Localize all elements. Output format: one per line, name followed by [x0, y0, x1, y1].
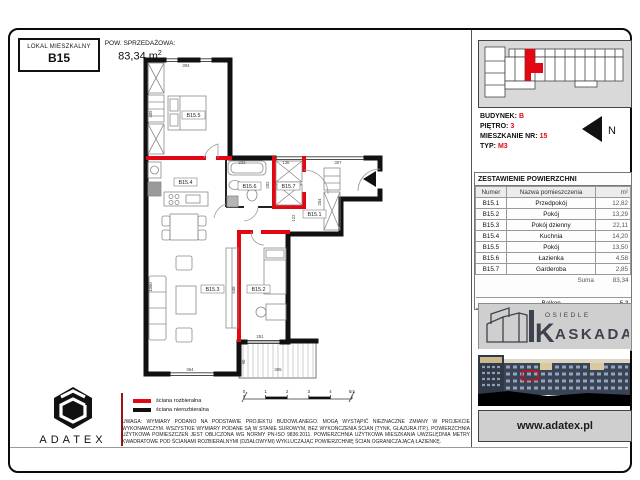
estate-logo-bar	[529, 310, 534, 342]
table-row: B15.3Pokój dzienny22,11	[476, 220, 631, 231]
developer-name: ADATEX	[39, 434, 106, 446]
room-label-b154: B15.4	[174, 178, 197, 186]
svg-text:B15.1: B15.1	[307, 212, 321, 218]
table-title: ZESTAWIENIE POWIERZCHNI	[475, 173, 631, 186]
svg-text:365: 365	[274, 367, 282, 372]
legend-item-removable: ściana rozbieralna	[133, 396, 233, 405]
svg-text:202: 202	[265, 181, 270, 189]
estate-name-initial: K	[535, 318, 555, 348]
structural-wall-label: ściana nierozbieralna	[156, 407, 209, 413]
scale-tick-labels: 0 1 2 3 4 5m	[243, 389, 356, 394]
estate-name-rest: ASKADA	[555, 326, 629, 343]
table-row: B15.1Przedpokój12,82	[476, 198, 631, 209]
unit-id-box: LOKAL MIESZKALNY B15	[18, 38, 100, 72]
info-building-value: B	[519, 113, 524, 120]
compass-north-icon: N	[580, 114, 626, 144]
info-floor-label: PIĘTRO:	[480, 123, 508, 130]
row-name: Pokój	[506, 242, 596, 253]
entrance-door-icon	[363, 171, 376, 187]
estate-logo-box: OSIEDLE K ASKADA	[478, 303, 632, 351]
floor-plan: B15.5 B15.4 B15.6 B15.7 B15.1 B15.3 B15.…	[118, 52, 478, 397]
kitchen-furniture	[148, 162, 208, 240]
row-name: Łazienka	[506, 253, 596, 264]
row-num: B15.5	[476, 242, 507, 253]
col-number: Numer	[476, 187, 507, 198]
room-label-b151: B15.1	[303, 210, 326, 218]
total-value: 83,34	[596, 275, 631, 286]
room-label-b152: B15.2	[247, 285, 270, 293]
removable-wall-label: ściana rozbieralna	[156, 398, 201, 404]
disclaimer-text: UWAGA: WYMIARY PODANO NA PODSTAWIE PROJE…	[122, 419, 470, 445]
scale-bar: 0 1 2 3 4 5m	[240, 388, 358, 406]
svg-text:136: 136	[282, 160, 290, 165]
compass-label: N	[608, 125, 616, 137]
svg-text:2: 2	[286, 389, 289, 394]
room-label-b157: B15.7	[277, 182, 300, 190]
estate-logo: OSIEDLE K ASKADA	[479, 304, 629, 348]
structural-wall-swatch	[133, 408, 151, 412]
table-row: B15.5Pokój13,50	[476, 242, 631, 253]
table-header-row: Numer Nazwa pomieszczenia m²	[476, 187, 631, 198]
svg-text:B15.6: B15.6	[242, 184, 256, 190]
info-type: TYP:M3	[480, 142, 580, 152]
developer-logo: ADATEX	[28, 384, 118, 446]
info-type-value: M3	[498, 143, 508, 150]
info-type-label: TYP:	[480, 143, 496, 150]
room-label-b153: B15.3	[201, 285, 224, 293]
building-level-minimap	[478, 40, 632, 108]
svg-text:1060: 1060	[148, 282, 153, 292]
row-name: Kuchnia	[506, 231, 596, 242]
col-name: Nazwa pomieszczenia	[506, 187, 596, 198]
row-area: 13,29	[596, 209, 631, 220]
svg-text:0: 0	[243, 389, 246, 394]
room-label-b155: B15.5	[182, 111, 205, 119]
svg-text:B15.2: B15.2	[251, 287, 265, 293]
total-row: Suma83,34	[476, 275, 631, 286]
removable-wall-swatch	[133, 399, 151, 403]
svg-text:364: 364	[186, 367, 194, 372]
svg-text:4: 4	[329, 389, 332, 394]
info-apartment-value: 15	[540, 133, 548, 140]
outer-walls	[146, 60, 380, 374]
row-num: B15.6	[476, 253, 507, 264]
row-area: 13,50	[596, 242, 631, 253]
unit-type-label: LOKAL MIESZKALNY	[20, 44, 98, 50]
svg-text:3: 3	[308, 389, 311, 394]
row-num: B15.7	[476, 264, 507, 275]
total-label: Suma	[506, 275, 596, 286]
room-label-b156: B15.6	[238, 182, 261, 190]
unit-info: BUDYNEK:B PIĘTRO:3 MIESZKANIE NR:15 TYP:…	[480, 112, 580, 152]
svg-text:122: 122	[291, 214, 296, 222]
row-area: 2,85	[596, 264, 631, 275]
row-name: Garderoba	[506, 264, 596, 275]
wall-legend: ściana rozbieralna ściana nierozbieralna	[133, 396, 233, 414]
row-area: 12,82	[596, 198, 631, 209]
unit-id: B15	[20, 51, 98, 65]
website-link[interactable]: www.adatex.pl	[478, 410, 632, 442]
svg-text:90: 90	[241, 359, 246, 364]
row-num: B15.2	[476, 209, 507, 220]
windows	[164, 59, 366, 376]
table-row: B15.6Łazienka4,58	[476, 253, 631, 264]
svg-text:232: 232	[238, 160, 246, 165]
building-photo	[478, 349, 630, 406]
bedroom-b155-furniture	[148, 63, 206, 154]
svg-text:307: 307	[334, 160, 342, 165]
row-area: 22,11	[596, 220, 631, 231]
minimap-drawing	[479, 41, 629, 105]
row-name: Przedpokój	[506, 198, 596, 209]
footer-divider	[10, 447, 628, 448]
building-render	[478, 349, 630, 406]
row-area: 4,58	[596, 253, 631, 264]
bedroom-b152-furniture	[256, 248, 286, 320]
info-apartment: MIESZKANIE NR:15	[480, 132, 580, 142]
rooms-table: Numer Nazwa pomieszczenia m² B15.1Przedp…	[475, 186, 631, 309]
info-floor: PIĘTRO:3	[480, 122, 580, 132]
svg-text:304: 304	[182, 63, 190, 68]
svg-text:409: 409	[148, 110, 153, 118]
info-building-label: BUDYNEK:	[480, 113, 517, 120]
row-name: Pokój dzienny	[506, 220, 596, 231]
living-room-furniture	[149, 248, 238, 342]
svg-text:204: 204	[317, 198, 322, 206]
sales-area-label: POW. SPRZEDAŻOWA:	[100, 40, 180, 47]
info-building: BUDYNEK:B	[480, 112, 580, 122]
hall-closet	[324, 168, 340, 230]
estate-logo-building-icon	[487, 308, 527, 342]
svg-text:538: 538	[231, 286, 236, 294]
svg-text:5m: 5m	[349, 389, 356, 394]
area-summary-table: ZESTAWIENIE POWIERZCHNI Numer Nazwa pomi…	[474, 172, 632, 310]
svg-text:B15.5: B15.5	[186, 113, 200, 119]
info-apartment-label: MIESZKANIE NR:	[480, 133, 538, 140]
svg-text:B15.7: B15.7	[281, 184, 295, 190]
col-area: m²	[596, 187, 631, 198]
svg-text:251: 251	[256, 334, 264, 339]
row-name: Pokój	[506, 209, 596, 220]
table-row: B15.4Kuchnia14,20	[476, 231, 631, 242]
table-row: B15.7Garderoba2,85	[476, 264, 631, 275]
svg-text:1: 1	[264, 389, 267, 394]
legend-item-structural: ściana nierozbieralna	[133, 405, 233, 414]
info-floor-value: 3	[510, 123, 514, 130]
svg-text:B15.4: B15.4	[178, 180, 192, 186]
row-num: B15.1	[476, 198, 507, 209]
spacer-row	[476, 285, 631, 298]
svg-text:B15.3: B15.3	[205, 287, 219, 293]
row-num: B15.4	[476, 231, 507, 242]
table-row: B15.2Pokój13,29	[476, 209, 631, 220]
row-num: B15.3	[476, 220, 507, 231]
row-area: 14,20	[596, 231, 631, 242]
balcony	[239, 342, 316, 378]
